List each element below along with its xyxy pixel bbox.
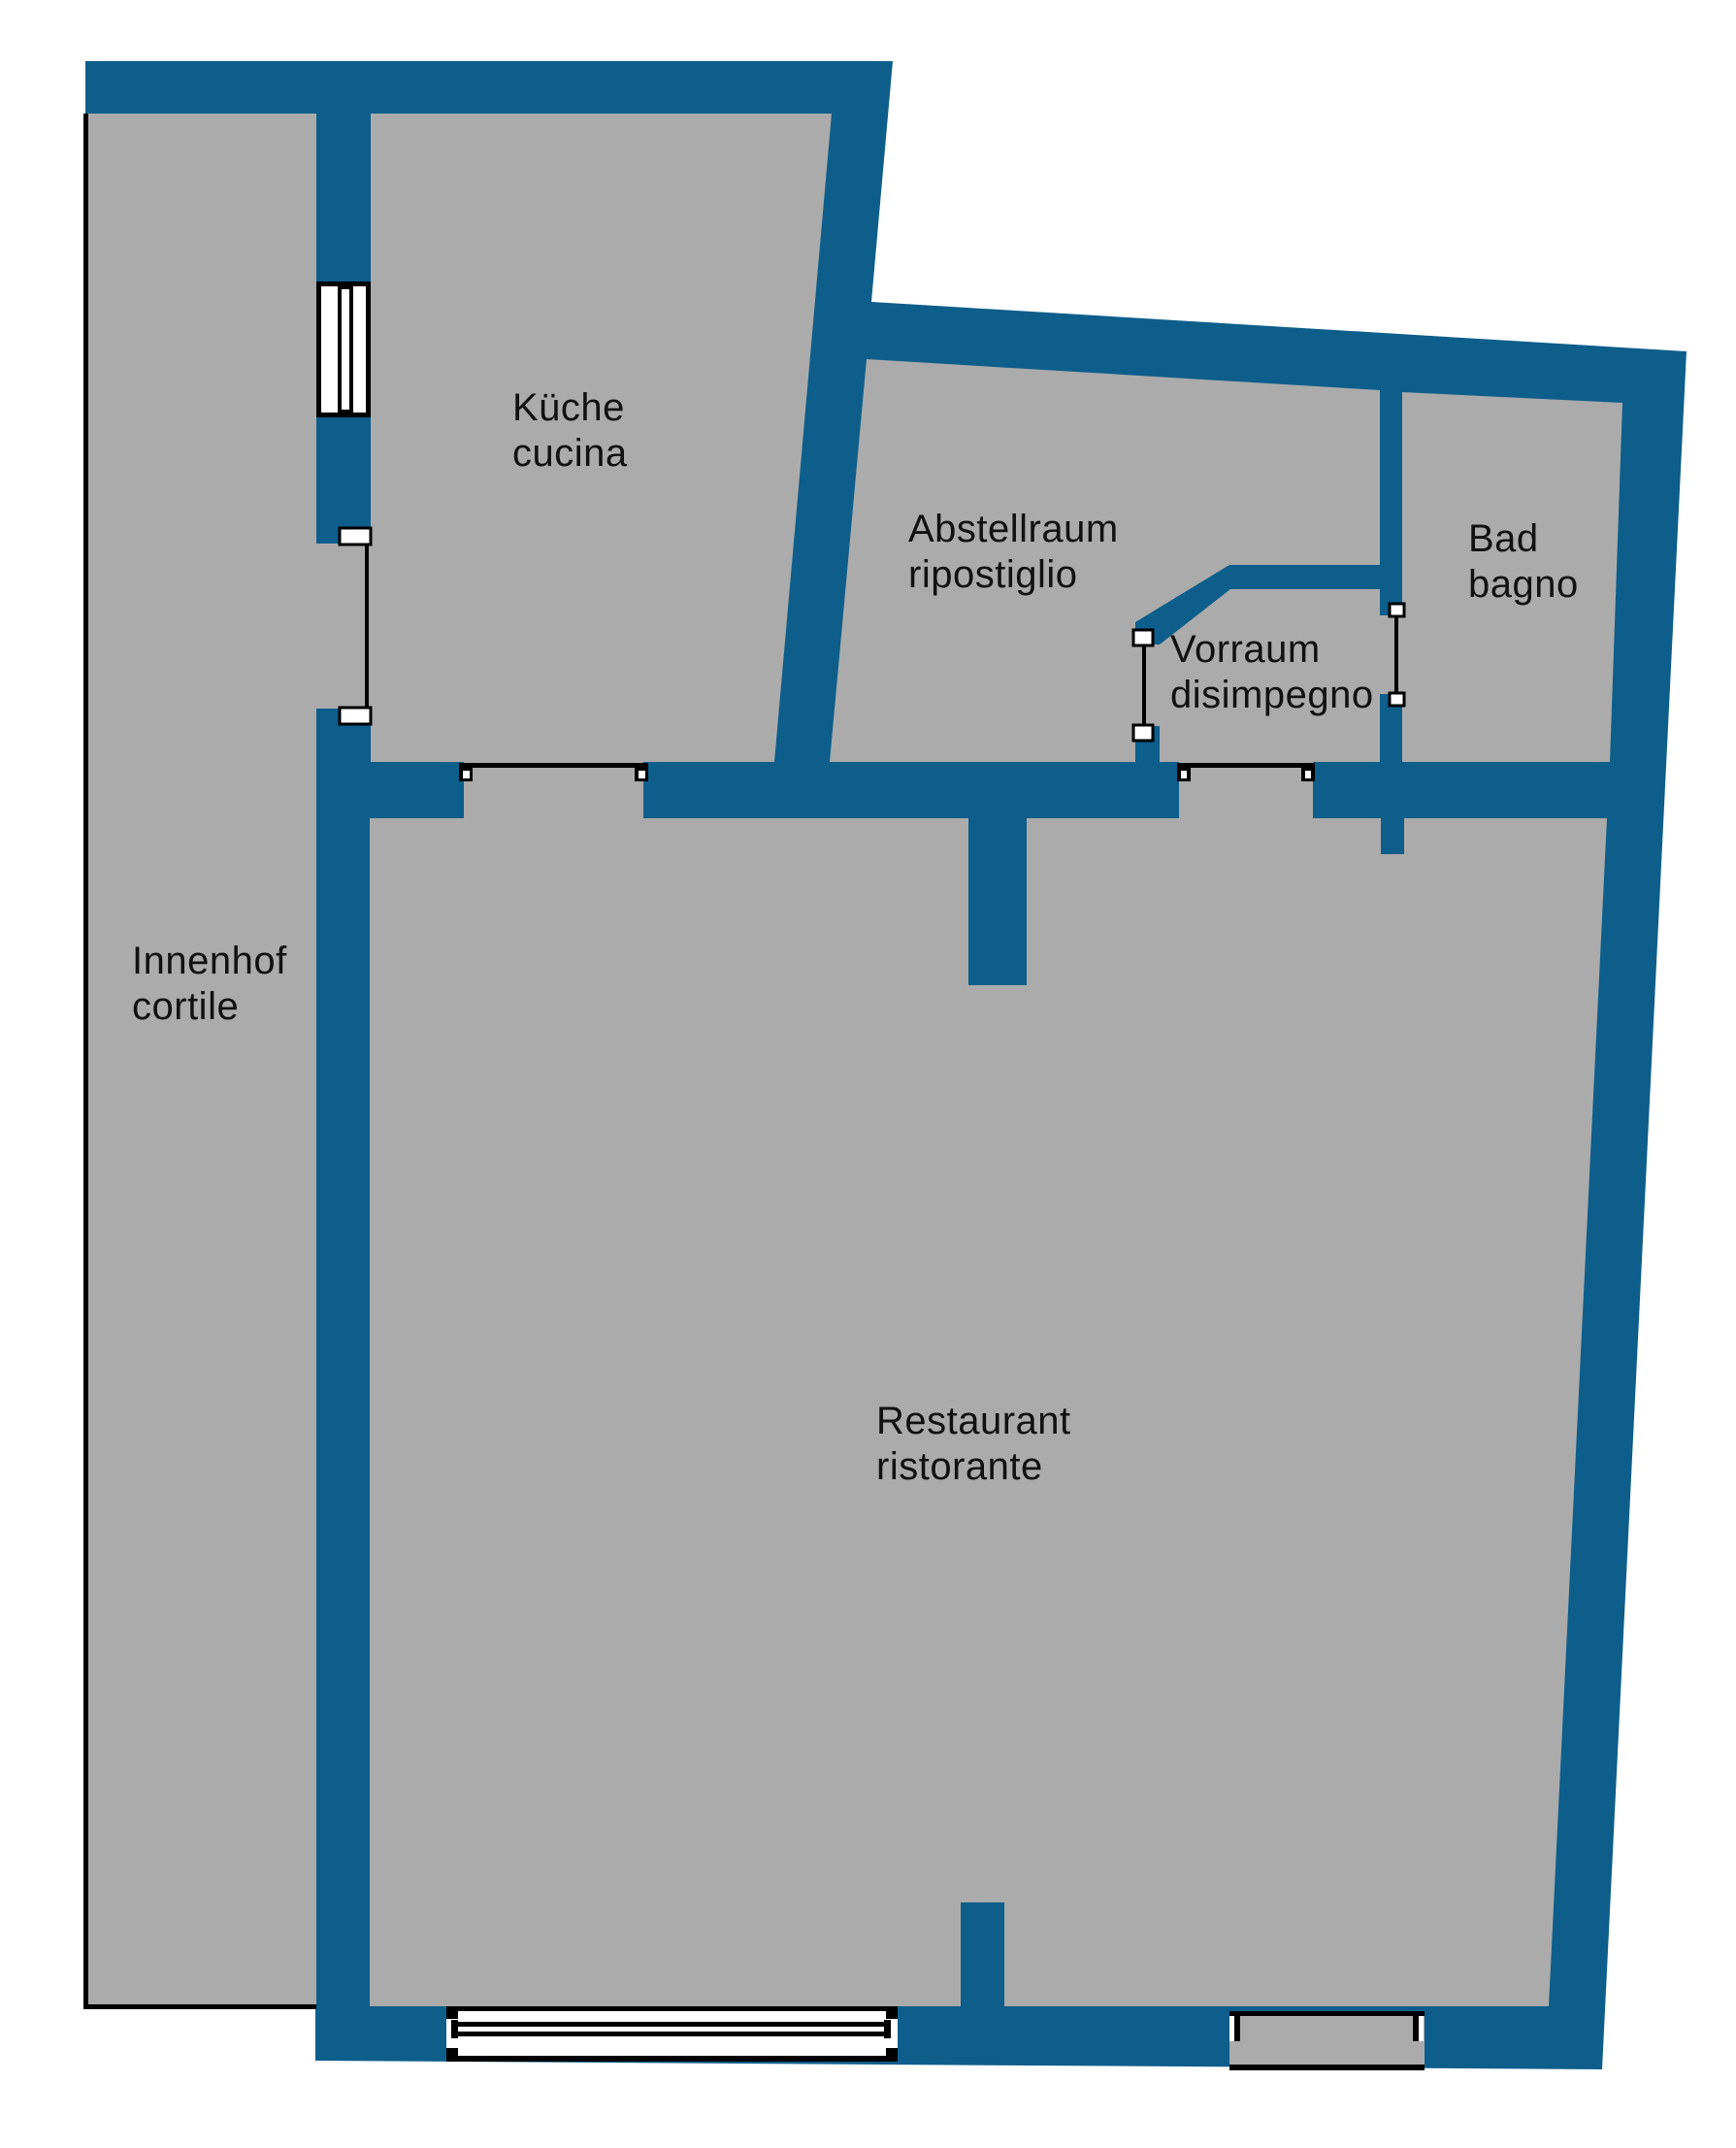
- label-vorraum-it: disimpegno: [1170, 673, 1374, 718]
- label-vorraum: Vorraum disimpegno: [1170, 627, 1374, 718]
- floor-plan-drawing: [0, 0, 1736, 2148]
- label-kueche: Küche cucina: [512, 385, 628, 477]
- label-restaurant-it: ristorante: [876, 1444, 1071, 1490]
- room-innenhof-floor: [88, 114, 316, 2004]
- wall-stub-restaurant-top: [968, 818, 1027, 985]
- kueche-window: [316, 281, 371, 417]
- floor-plan: Innenhof cortile Küche cucina Abstellrau…: [0, 0, 1736, 2148]
- label-vorraum-de: Vorraum: [1170, 627, 1374, 673]
- label-bad: Bad bagno: [1468, 516, 1579, 608]
- wall-stub-vorraum-bottom: [1381, 818, 1404, 854]
- vorraum-left-door: [1133, 630, 1160, 741]
- label-bad-de: Bad: [1468, 516, 1579, 562]
- label-innenhof-de: Innenhof: [132, 939, 287, 984]
- label-bad-it: bagno: [1468, 562, 1579, 608]
- bad-door: [1380, 604, 1404, 706]
- restaurant-bottom-window: [446, 2006, 898, 2062]
- label-innenhof-it: cortile: [132, 984, 287, 1030]
- vorraum-bottom-door: [1177, 762, 1315, 818]
- restaurant-entrance-door: [1229, 2011, 1425, 2070]
- label-innenhof: Innenhof cortile: [132, 939, 287, 1030]
- label-abstellraum-de: Abstellraum: [908, 507, 1119, 552]
- label-kueche-de: Küche: [512, 385, 628, 431]
- label-kueche-it: cucina: [512, 431, 628, 477]
- label-restaurant-de: Restaurant: [876, 1399, 1071, 1444]
- label-abstellraum: Abstellraum ripostiglio: [908, 507, 1119, 598]
- wall-stub-restaurant-bottom: [961, 1902, 1004, 2006]
- kueche-left-door: [316, 528, 371, 724]
- label-abstellraum-it: ripostiglio: [908, 552, 1119, 598]
- courtyard-left-line: [83, 114, 88, 2009]
- kueche-bottom-door: [459, 762, 648, 818]
- courtyard-bottom-line: [83, 2004, 316, 2009]
- label-restaurant: Restaurant ristorante: [876, 1399, 1071, 1490]
